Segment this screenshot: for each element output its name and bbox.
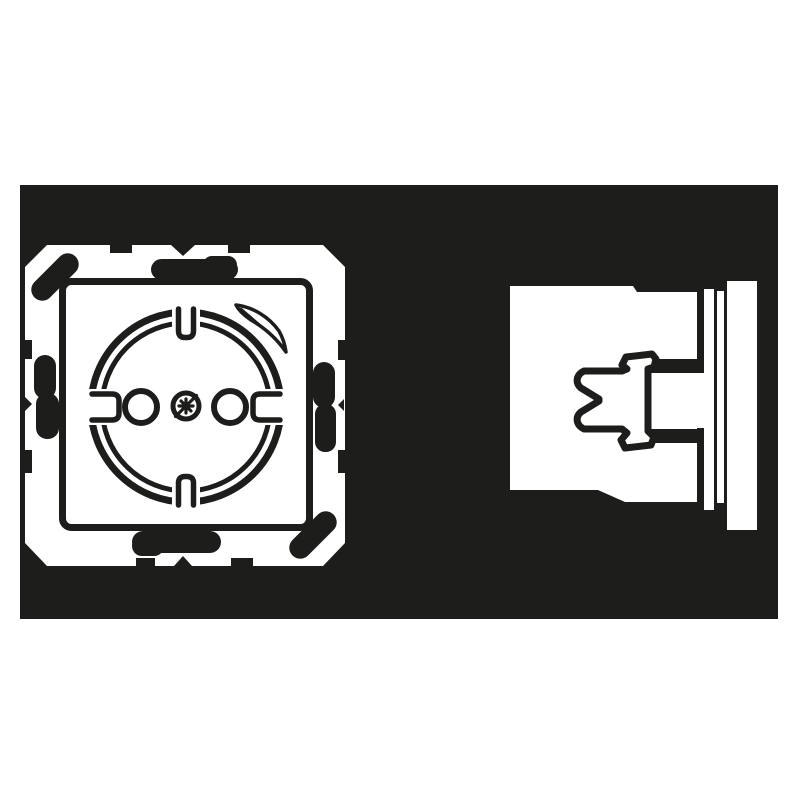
pin-hole-right	[214, 391, 246, 423]
socket-technical-drawing	[0, 0, 800, 800]
cover-plate-edge	[727, 281, 757, 530]
well-mouth-bridge	[694, 373, 706, 428]
frame-edge	[717, 291, 724, 503]
illustration-stage	[0, 0, 800, 800]
socket-front-view	[25, 245, 345, 566]
pin-hole-left	[125, 391, 157, 423]
